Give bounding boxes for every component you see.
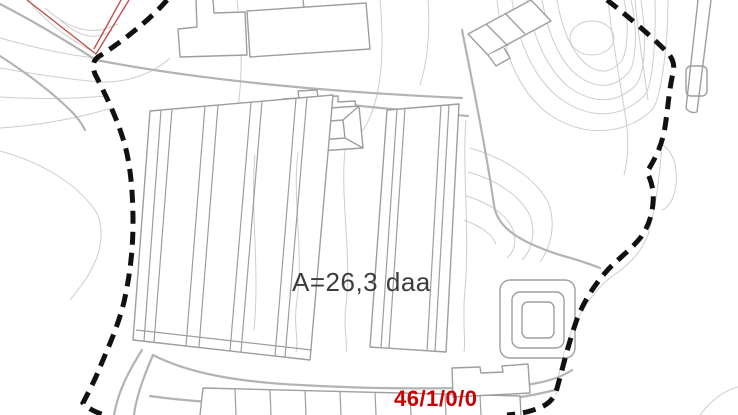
building-top-l-shape xyxy=(178,0,247,57)
building-outlines xyxy=(133,0,711,415)
building-slanted-top-right xyxy=(468,0,551,55)
boundary-right-branch xyxy=(507,0,674,415)
area-label: A=26,3 daa xyxy=(292,267,431,297)
building-terraced-right xyxy=(500,280,575,358)
parcel-number-label: 46/1/0/0 xyxy=(394,386,478,411)
map-canvas: A=26,3 daa 46/1/0/0 xyxy=(0,0,738,415)
building-top-rect xyxy=(247,3,370,57)
building-top-rect-vent xyxy=(303,0,304,8)
map-viewport: A=26,3 daa 46/1/0/0 xyxy=(0,0,738,415)
